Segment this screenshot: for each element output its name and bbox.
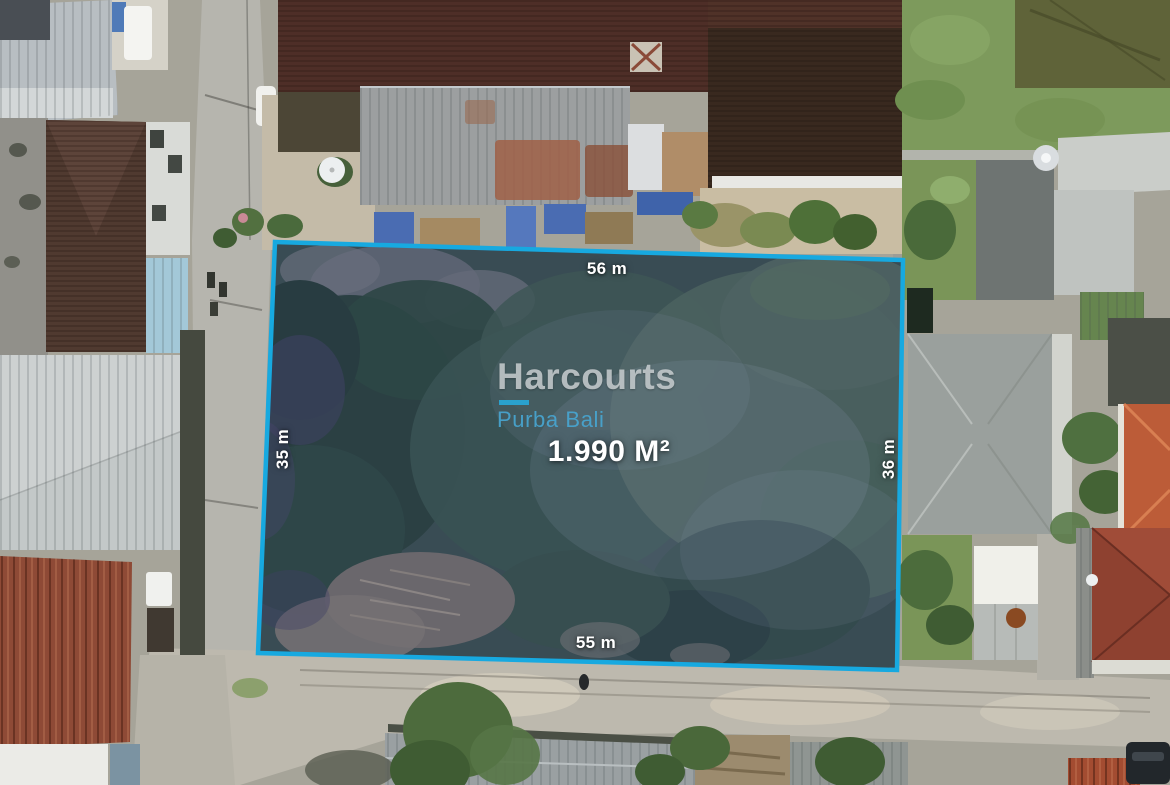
white-roof	[974, 546, 1038, 604]
shadow-wall	[180, 330, 205, 655]
grass	[930, 176, 970, 204]
blue-tarp	[374, 212, 414, 246]
umbrella-center	[330, 168, 335, 173]
wood-pile	[420, 218, 480, 246]
white-roof	[0, 744, 108, 785]
dark-roof	[976, 160, 1054, 300]
tree	[232, 208, 264, 236]
roof-panel	[168, 155, 182, 173]
silver-roof	[628, 124, 664, 190]
white-van	[124, 6, 152, 60]
dark-truck	[147, 608, 174, 652]
rust-roof-texture	[0, 556, 132, 748]
brown-roof-tiles	[46, 120, 146, 352]
white-eave	[712, 176, 902, 189]
tree	[815, 737, 885, 785]
roof-panel	[150, 130, 164, 148]
watermark-accent-bar	[499, 400, 529, 405]
bush	[267, 214, 303, 238]
tiled-driveway	[974, 604, 1038, 660]
shadow-structure	[278, 92, 362, 152]
water-tank-cap	[1041, 153, 1051, 163]
plot-area-label: 1.990 M²	[548, 435, 670, 469]
roof-panel	[152, 205, 166, 221]
dry-bush	[740, 212, 796, 248]
dark-roof-tiles	[708, 0, 902, 188]
round-planter	[1006, 608, 1026, 628]
blue-tarp	[544, 204, 586, 234]
large-gray-roof-texture	[0, 355, 185, 550]
rust-patch	[585, 145, 633, 197]
car-windshield	[1132, 752, 1164, 761]
bush	[789, 200, 841, 244]
concrete-roof	[1058, 132, 1170, 196]
motorbike	[210, 302, 218, 316]
aerial-photo: 56 m 35 m 36 m 55 m Harcourts Purba Bali…	[0, 0, 1170, 785]
rust-patch	[495, 140, 580, 200]
tree	[897, 550, 953, 610]
tree	[470, 725, 540, 785]
grass	[1015, 98, 1105, 142]
bush	[833, 214, 877, 250]
satellite-dish	[1086, 574, 1098, 586]
dimension-label-right: 36 m	[879, 439, 899, 479]
wood-pile	[585, 212, 633, 244]
grass	[895, 80, 965, 120]
watermark-subbrand-text: Purba Bali	[497, 409, 676, 431]
bush	[1062, 412, 1122, 464]
pond	[907, 288, 933, 333]
flower-tree	[238, 213, 248, 223]
top-row-buildings	[213, 0, 932, 254]
corrugated-wall-texture	[1076, 528, 1094, 678]
tree	[926, 605, 974, 645]
shingle-roof	[1108, 318, 1170, 406]
motorbike-rider	[579, 674, 589, 690]
right-block-buildings	[895, 0, 1170, 678]
blue-tarp	[506, 206, 536, 249]
motorbike	[207, 272, 215, 288]
orange-tile-roof	[1124, 404, 1170, 536]
watermark: Harcourts Purba Bali	[497, 358, 676, 431]
bottom-left-road	[132, 655, 235, 785]
blue-gray-roof	[110, 744, 140, 785]
white-wall	[1092, 660, 1170, 674]
right-alley	[1037, 525, 1079, 680]
rust-patch	[465, 100, 495, 124]
tree	[904, 200, 956, 260]
bush	[213, 228, 237, 248]
road-sand-patch	[710, 685, 890, 725]
watermark-brand-text: Harcourts	[497, 358, 676, 395]
tan-wall	[662, 132, 708, 196]
road-sand-patch	[980, 694, 1120, 730]
bush	[682, 201, 718, 229]
parked-car	[1126, 742, 1170, 784]
blue-tarp	[112, 2, 126, 32]
yard-junk	[19, 194, 41, 210]
grass	[910, 15, 990, 65]
grass-tuft	[232, 678, 268, 698]
dimension-label-bottom: 55 m	[576, 633, 616, 653]
yard-junk	[9, 143, 27, 157]
dimension-label-top: 56 m	[587, 259, 627, 279]
white-truck	[146, 572, 172, 606]
yard-junk	[4, 256, 20, 268]
motorbike	[219, 282, 227, 297]
dimension-label-left: 35 m	[273, 429, 293, 469]
dark-roof	[0, 0, 50, 40]
